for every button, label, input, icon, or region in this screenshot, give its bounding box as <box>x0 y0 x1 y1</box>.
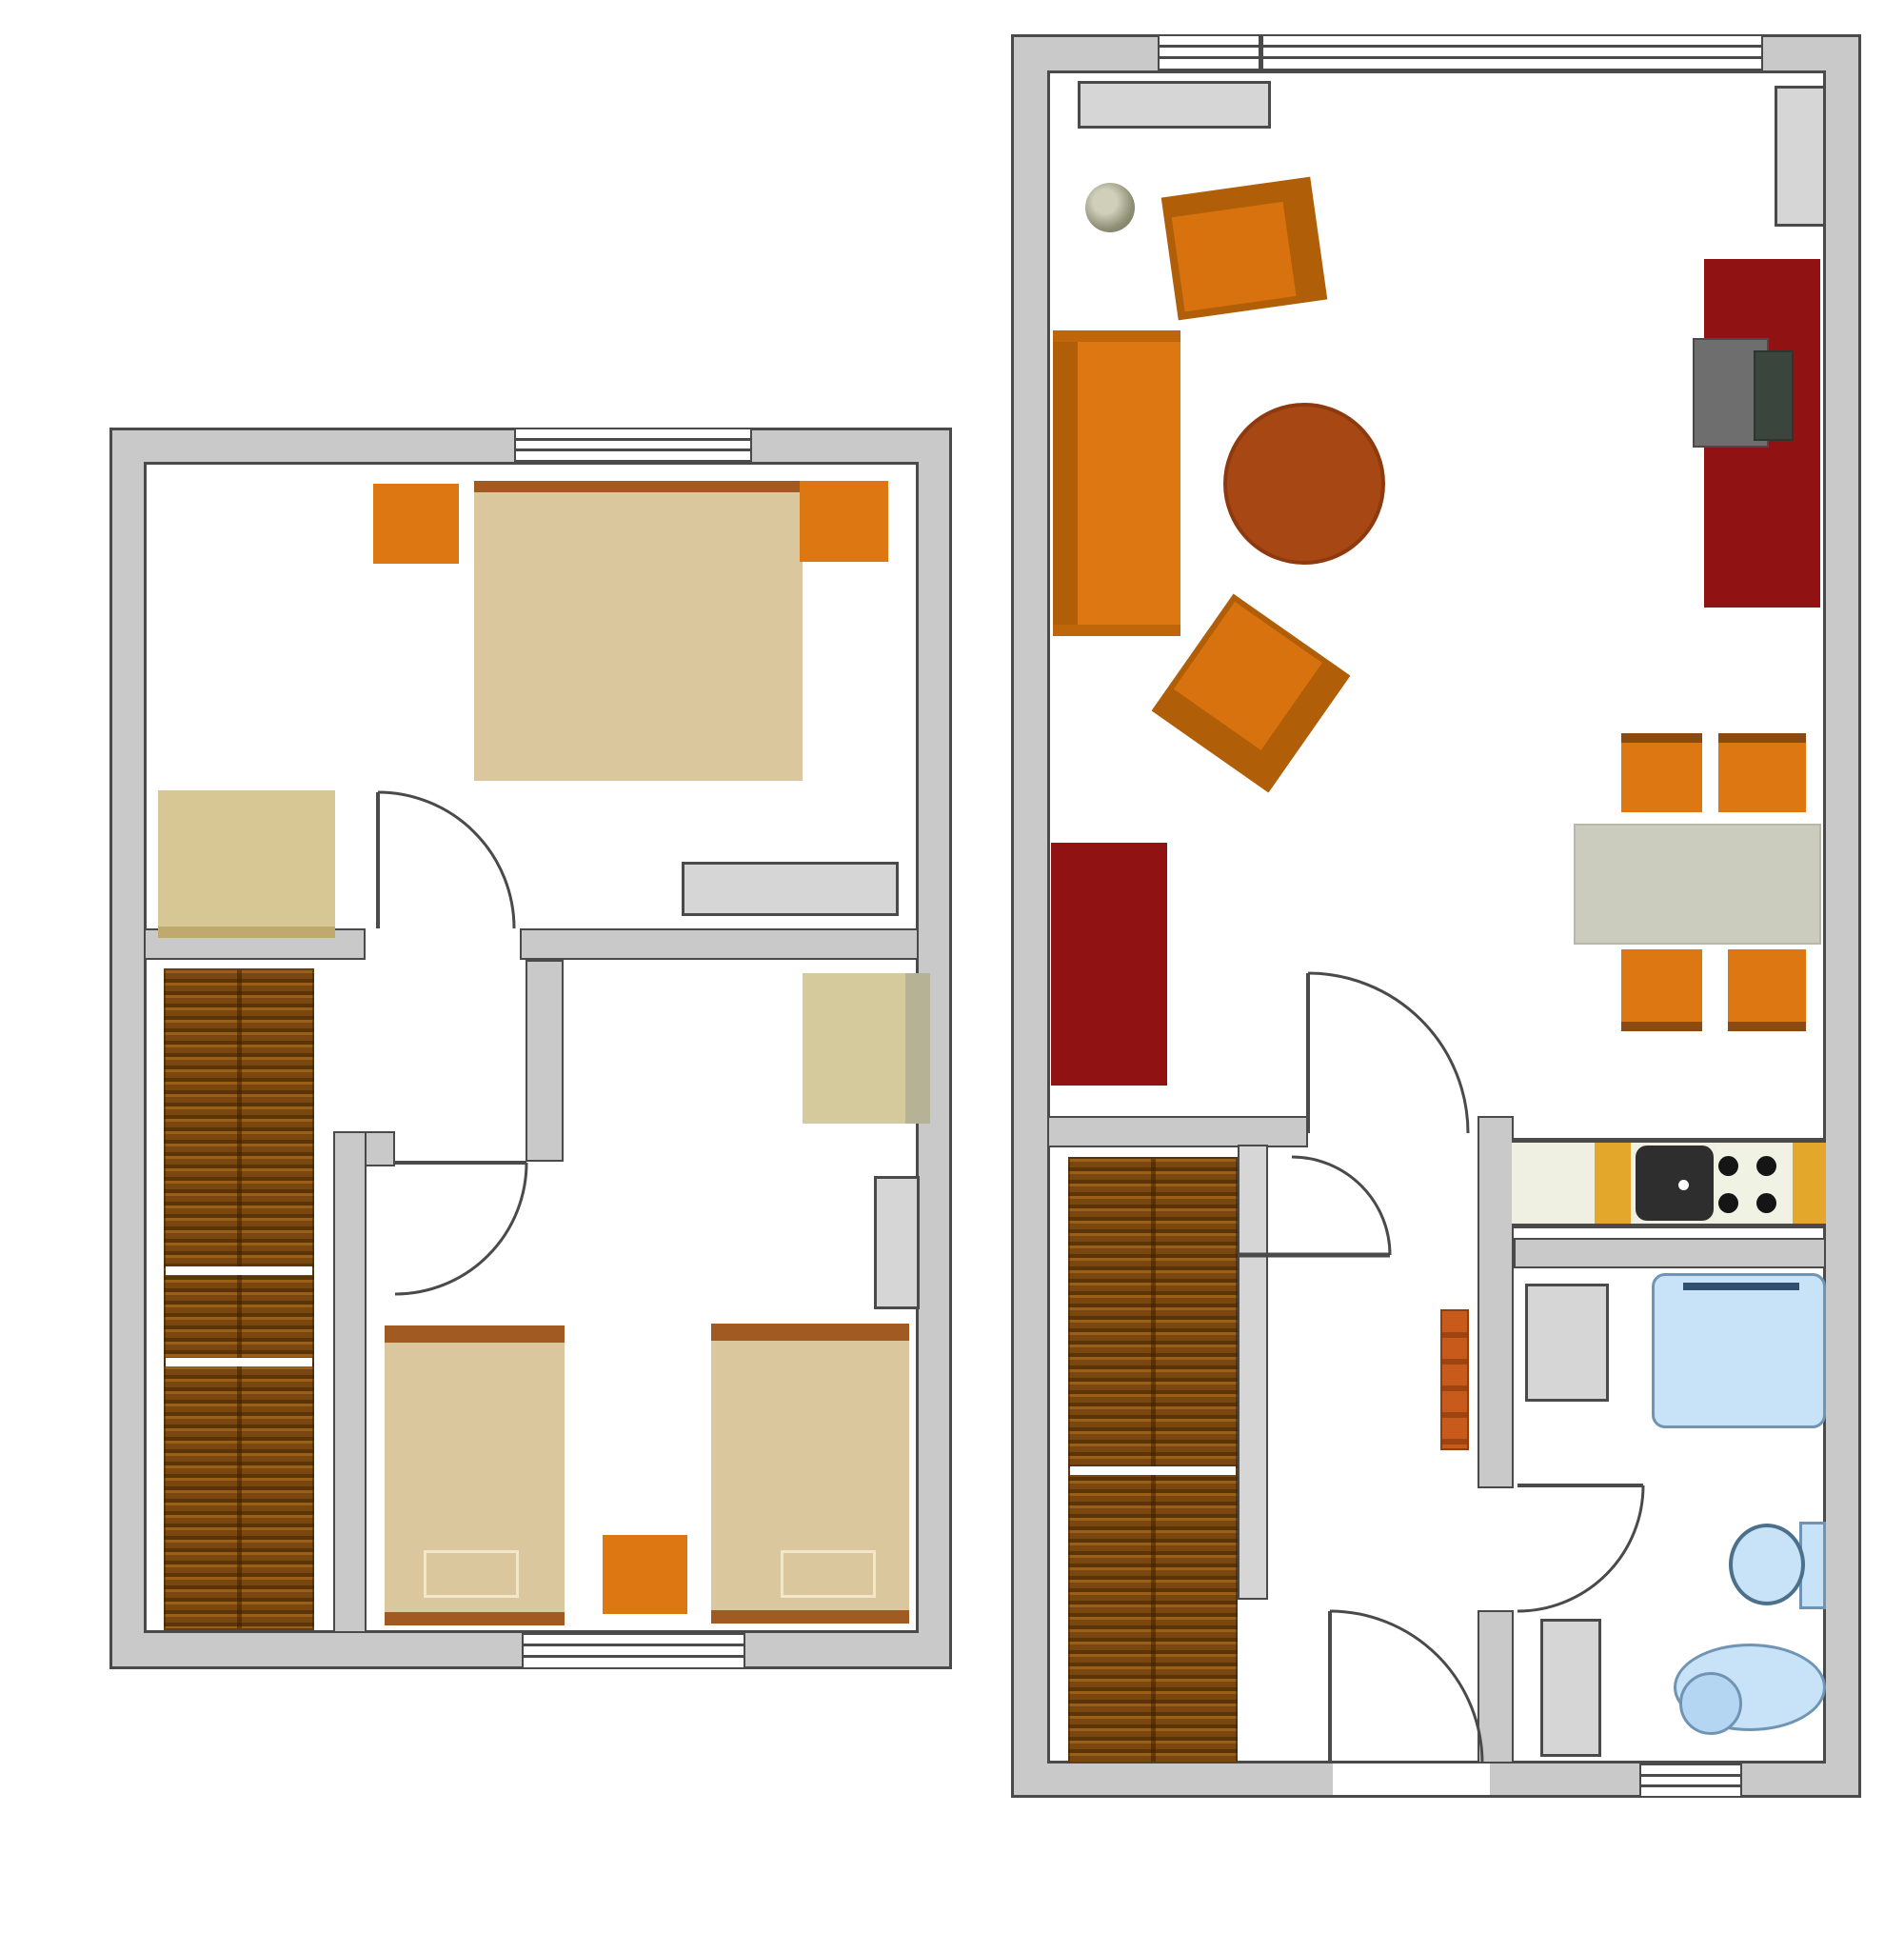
sofa-backrest <box>1053 330 1078 636</box>
dining-chair <box>1621 949 1702 1031</box>
kitchen-cabinet <box>1595 1143 1631 1224</box>
stove-burner <box>1756 1156 1776 1176</box>
ground-wall-hall-lower <box>1478 1610 1514 1764</box>
window-mullion <box>1259 34 1263 70</box>
bed-head-strip <box>711 1610 909 1624</box>
sofa <box>1053 330 1180 636</box>
armchair-top <box>1161 177 1328 321</box>
dresser <box>682 862 899 916</box>
upper-staircase <box>164 968 314 1630</box>
bathroom-window <box>1639 1764 1742 1798</box>
pillow <box>781 1550 876 1598</box>
upper-window-top <box>514 428 752 462</box>
tv-cabinet <box>1051 843 1167 1086</box>
sink-drain <box>1678 1180 1689 1190</box>
staircase-center-line <box>237 970 242 1628</box>
bed-headboard <box>474 481 803 492</box>
stove-burner <box>1756 1193 1776 1213</box>
kids-nightstand <box>603 1535 687 1614</box>
upper-wall-bedroom1-right <box>520 928 919 960</box>
kitchen-cabinet <box>1793 1143 1826 1224</box>
floorplan-canvas <box>0 0 1904 1933</box>
ground-wall-bathroom-top <box>1514 1238 1826 1268</box>
bed-head-strip <box>385 1612 565 1625</box>
office-chair-back <box>1754 350 1794 441</box>
bed-foot-strip <box>385 1325 565 1343</box>
washing-machine <box>1525 1284 1609 1402</box>
ground-wall-hall-upper <box>1478 1116 1514 1488</box>
nightstand-left <box>373 484 459 564</box>
dining-chair <box>1718 733 1806 812</box>
pillow <box>424 1550 519 1598</box>
living-radiator <box>1775 86 1826 227</box>
sofa-armrest <box>1053 330 1180 342</box>
bidet-bowl <box>1679 1672 1742 1735</box>
toilet-bowl <box>1729 1524 1805 1605</box>
stair-banister-wall <box>1238 1145 1268 1600</box>
coffee-table <box>1223 403 1385 565</box>
stove-burner <box>1718 1193 1738 1213</box>
staircase-landing-gap <box>1070 1466 1236 1475</box>
bed-foot-strip <box>711 1324 909 1341</box>
ground-staircase <box>1068 1157 1238 1764</box>
staircase-center-line <box>1151 1159 1156 1762</box>
desk-edge <box>158 927 335 938</box>
stove <box>1716 1146 1790 1221</box>
upper-wall-stair-side <box>333 1131 367 1633</box>
bathtub-edge <box>1683 1283 1799 1290</box>
dining-chair <box>1728 949 1806 1031</box>
upper-wall-hall-vertical <box>526 960 564 1162</box>
sofa-armrest <box>1053 625 1180 636</box>
double-bed <box>474 481 803 781</box>
upper-window-bottom <box>522 1633 745 1669</box>
hall-radiator <box>1440 1309 1469 1450</box>
staircase-landing-gap <box>166 1358 312 1366</box>
stove-burner <box>1718 1156 1738 1176</box>
kitchen-sink <box>1636 1146 1714 1221</box>
bathtub <box>1652 1273 1826 1428</box>
dining-table <box>1574 824 1821 945</box>
kids-table-shade <box>905 973 930 1124</box>
kitchen-counter <box>1512 1138 1826 1228</box>
nightstand-right <box>800 481 888 562</box>
kids-table <box>803 973 930 1124</box>
kids-radiator <box>874 1176 920 1309</box>
bathroom-radiator <box>1540 1619 1601 1757</box>
ground-wall-living-hall <box>1047 1116 1308 1147</box>
staircase-landing-gap <box>166 1266 312 1275</box>
sideboard <box>1078 81 1271 129</box>
ground-window-top <box>1158 34 1763 70</box>
plant-pot <box>1085 183 1135 232</box>
dining-chair <box>1621 733 1702 812</box>
armchair-seat <box>1172 202 1297 311</box>
bedroom-desk <box>158 790 335 938</box>
entrance-door-opening <box>1333 1764 1490 1795</box>
